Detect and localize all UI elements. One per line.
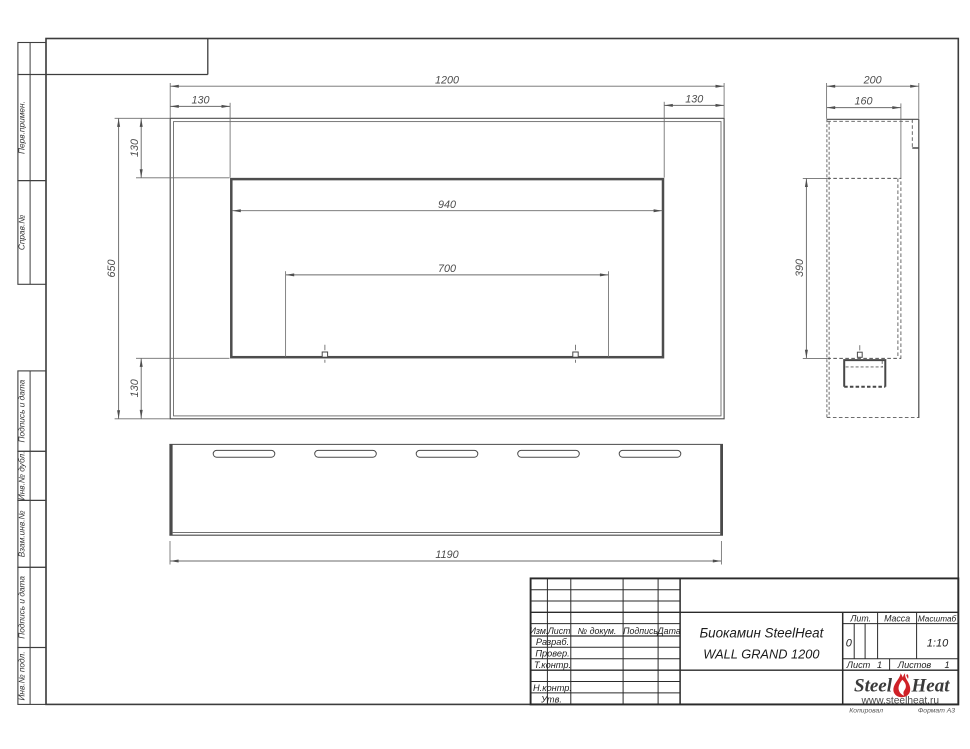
svg-text:Взам.инв.№: Взам.инв.№ — [17, 510, 27, 557]
svg-text:Steel: Steel — [854, 676, 893, 697]
svg-text:Разраб.: Разраб. — [536, 637, 569, 647]
svg-text:Дата: Дата — [656, 626, 680, 636]
svg-text:Подпись: Подпись — [623, 626, 658, 636]
svg-text:Утв.: Утв. — [540, 694, 562, 704]
svg-text:WALL GRAND 1200: WALL GRAND 1200 — [703, 647, 820, 662]
svg-text:Инв.№ подл.: Инв.№ подл. — [17, 651, 27, 700]
svg-text:Heat: Heat — [911, 676, 951, 697]
svg-text:130: 130 — [129, 379, 141, 397]
svg-text:1:10: 1:10 — [927, 638, 949, 650]
svg-text:200: 200 — [863, 74, 882, 86]
svg-text:650: 650 — [106, 259, 118, 277]
svg-text:Масштаб: Масштаб — [918, 615, 957, 624]
svg-text:Справ.№: Справ.№ — [17, 215, 27, 250]
svg-text:940: 940 — [438, 199, 456, 211]
svg-text:Масса: Масса — [884, 614, 910, 624]
svg-text:Лист: Лист — [547, 626, 571, 636]
svg-text:130: 130 — [191, 95, 209, 107]
svg-text:1: 1 — [877, 660, 882, 670]
svg-text:Листов: Листов — [897, 660, 932, 670]
svg-text:Лит.: Лит. — [849, 614, 871, 624]
svg-text:Биокамин SteelHeat: Биокамин SteelHeat — [699, 626, 824, 641]
svg-text:Лист: Лист — [846, 660, 871, 670]
svg-text:Подпись и дата: Подпись и дата — [17, 379, 27, 442]
svg-text:0: 0 — [846, 638, 853, 650]
svg-text:Копировал: Копировал — [849, 708, 883, 715]
svg-text:1200: 1200 — [435, 74, 459, 86]
svg-text:Изм.: Изм. — [530, 626, 549, 636]
svg-text:Т.контр.: Т.контр. — [534, 660, 571, 670]
svg-text:700: 700 — [438, 263, 456, 275]
svg-text:Перв.примен.: Перв.примен. — [17, 101, 27, 154]
svg-text:1190: 1190 — [435, 549, 458, 561]
svg-text:№ докум.: № докум. — [578, 626, 617, 636]
svg-text:Провер.: Провер. — [535, 649, 569, 659]
svg-text:Формат А3: Формат А3 — [918, 708, 955, 715]
svg-text:130: 130 — [129, 139, 141, 157]
svg-text:Подпись и дата: Подпись и дата — [17, 576, 27, 639]
svg-text:1: 1 — [944, 660, 949, 670]
svg-text:390: 390 — [794, 259, 806, 277]
svg-text:www.steelheat.ru: www.steelheat.ru — [861, 695, 940, 706]
svg-text:160: 160 — [854, 96, 872, 108]
svg-text:130: 130 — [685, 94, 703, 106]
svg-text:Н.контр.: Н.контр. — [533, 683, 572, 693]
svg-text:Инв.№ дубл.: Инв.№ дубл. — [17, 451, 27, 500]
